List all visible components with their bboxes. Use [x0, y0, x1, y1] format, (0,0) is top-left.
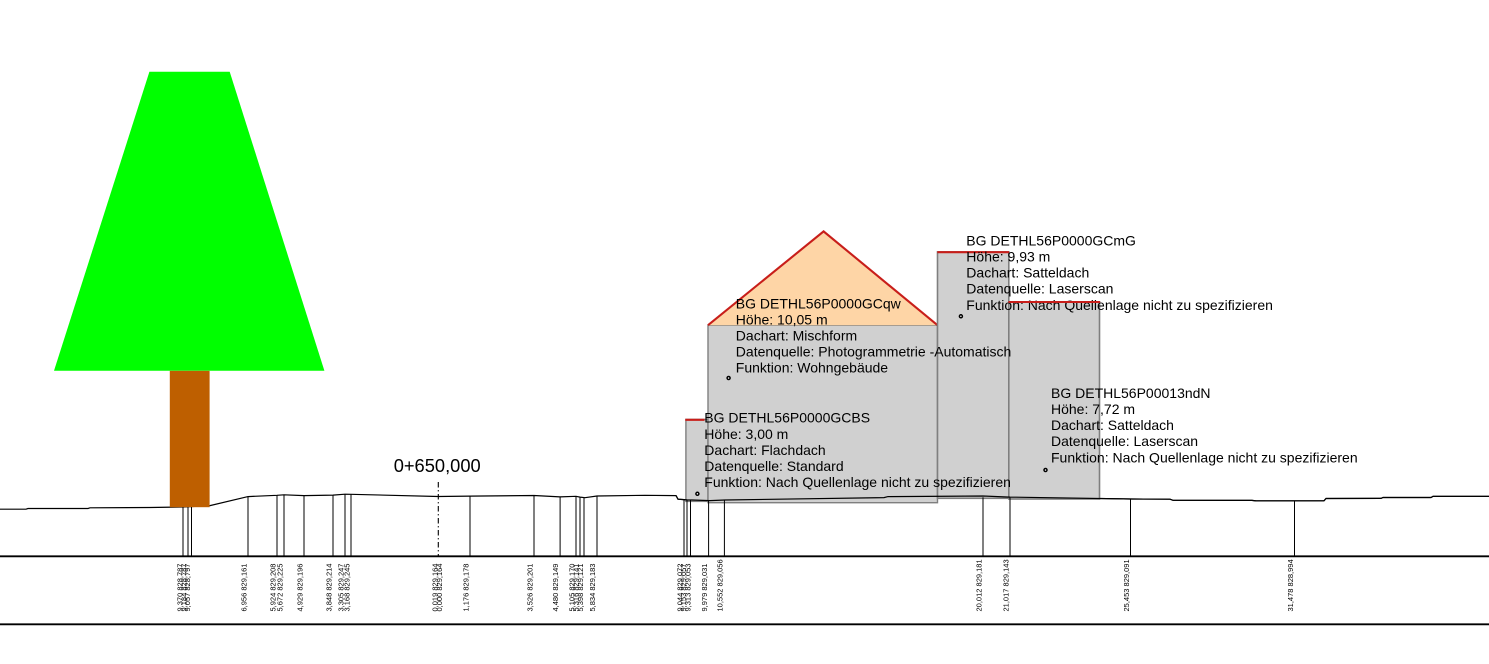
svg-text:5,672 829,225: 5,672 829,225 [276, 564, 285, 612]
svg-text:4,480 829,149: 4,480 829,149 [551, 564, 560, 612]
svg-text:BG DETHL56P0000GCmG: BG DETHL56P0000GCmG [966, 232, 1136, 248]
svg-text:0,000 829,164: 0,000 829,164 [435, 564, 444, 612]
svg-text:0+650,000: 0+650,000 [394, 455, 481, 476]
svg-text:Funktion: Wohngebäude: Funktion: Wohngebäude [736, 360, 889, 376]
svg-text:Datenquelle: Laserscan: Datenquelle: Laserscan [1051, 433, 1198, 449]
svg-text:Datenquelle: Photogrammetrie -: Datenquelle: Photogrammetrie -Automatisc… [736, 344, 1011, 360]
svg-text:Datenquelle: Standard: Datenquelle: Standard [704, 458, 843, 474]
svg-text:Dachart: Satteldach: Dachart: Satteldach [1051, 417, 1174, 433]
svg-text:Höhe: 7,72 m: Höhe: 7,72 m [1051, 401, 1135, 417]
svg-text:20,012 829,181: 20,012 829,181 [975, 559, 984, 611]
svg-text:31,478 828,994: 31,478 828,994 [1286, 559, 1295, 611]
svg-text:Höhe: 10,05 m: Höhe: 10,05 m [736, 311, 828, 327]
svg-text:Dachart: Mischform: Dachart: Mischform [736, 328, 857, 344]
svg-text:Datenquelle: Laserscan: Datenquelle: Laserscan [966, 281, 1113, 297]
svg-text:Höhe: 9,93 m: Höhe: 9,93 m [966, 249, 1050, 265]
svg-text:Funktion: Nach Quellenlage nic: Funktion: Nach Quellenlage nicht zu spez… [1051, 449, 1358, 465]
svg-text:BG DETHL56P0000GCqw: BG DETHL56P0000GCqw [736, 295, 902, 311]
svg-text:3,168 829,245: 3,168 829,245 [343, 564, 352, 612]
svg-text:25,453 829,091: 25,453 829,091 [1122, 559, 1131, 611]
svg-text:BG DETHL56P00013ndN: BG DETHL56P00013ndN [1051, 385, 1211, 401]
svg-text:6,956 829,161: 6,956 829,161 [240, 564, 249, 612]
svg-text:3,526 829,201: 3,526 829,201 [526, 564, 535, 612]
svg-text:1,176 829,178: 1,176 829,178 [462, 564, 471, 612]
svg-text:BG DETHL56P0000GCBS: BG DETHL56P0000GCBS [704, 410, 870, 426]
svg-text:9,057 828,797: 9,057 828,797 [183, 564, 192, 612]
svg-text:Funktion: Nach Quellenlage nic: Funktion: Nach Quellenlage nicht zu spez… [704, 474, 1011, 490]
svg-text:5,834 829,183: 5,834 829,183 [588, 564, 597, 612]
svg-text:Dachart: Flachdach: Dachart: Flachdach [704, 442, 825, 458]
svg-text:3,848 829,214: 3,848 829,214 [325, 564, 334, 612]
svg-text:Höhe: 3,00 m: Höhe: 3,00 m [704, 426, 788, 442]
svg-text:Dachart: Satteldach: Dachart: Satteldach [966, 265, 1089, 281]
svg-text:5,398 829,121: 5,398 829,121 [576, 564, 585, 612]
svg-text:9,979 829,031: 9,979 829,031 [700, 564, 709, 612]
svg-text:9,313 829,053: 9,313 829,053 [684, 564, 693, 612]
svg-text:10,552 829,056: 10,552 829,056 [716, 559, 725, 611]
svg-text:21,017 829,143: 21,017 829,143 [1002, 559, 1011, 611]
svg-text:Funktion: Nach Quellenlage nic: Funktion: Nach Quellenlage nicht zu spez… [966, 297, 1273, 313]
svg-text:4,929 829,196: 4,929 829,196 [296, 564, 305, 612]
